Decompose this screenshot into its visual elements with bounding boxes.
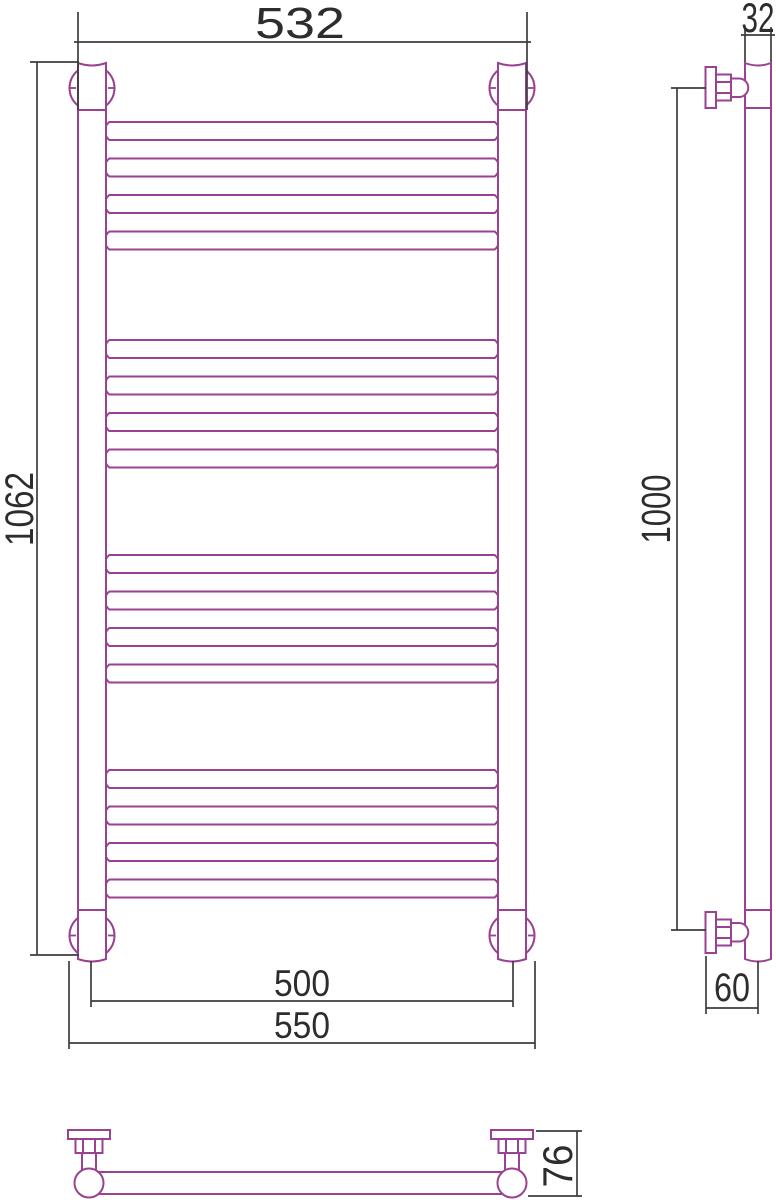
dim-mount-height-label: 1000 (633, 475, 679, 544)
towel-rail-drawing: 532 1062 500 550 32 (0, 0, 776, 1200)
rung (105, 628, 499, 646)
side-top-bracket (706, 67, 749, 108)
bottom-view (68, 1130, 533, 1198)
rung (105, 340, 499, 358)
bottom-right-tube-section (498, 1169, 527, 1198)
rung (105, 880, 499, 898)
dim-width-top-label: 532 (255, 0, 345, 48)
rung (105, 122, 499, 140)
bottom-tube (89, 1172, 512, 1194)
rung (105, 770, 499, 788)
dim-height-label: 1062 (0, 472, 42, 546)
dim-tube-diameter-label: 32 (742, 0, 775, 41)
rung (105, 555, 499, 573)
rung (105, 232, 499, 250)
rung (105, 592, 499, 610)
rung (105, 377, 499, 395)
bottom-left-bracket (68, 1130, 110, 1170)
side-tube (745, 63, 771, 962)
bottom-left-tube-section (75, 1169, 104, 1198)
rung (105, 195, 499, 213)
drawing-canvas: 532 1062 500 550 32 (0, 0, 776, 1200)
rung (105, 159, 499, 177)
rungs (105, 122, 499, 898)
front-left-tube (78, 63, 106, 962)
front-collar-lines (78, 110, 526, 910)
rung (105, 807, 499, 825)
rung (105, 665, 499, 683)
dim-depth-label: 76 (534, 1145, 581, 1188)
front-view (69, 63, 536, 962)
rung (105, 413, 499, 431)
rung (105, 843, 499, 861)
side-view (706, 63, 772, 962)
front-right-tube (498, 63, 526, 962)
rung (105, 450, 499, 468)
dim-width-overall-label: 550 (274, 1005, 330, 1046)
dim-wall-offset-label: 60 (714, 966, 750, 1010)
bottom-right-bracket (491, 1130, 533, 1170)
side-bottom-bracket (706, 912, 749, 953)
dim-width-axis-label: 500 (274, 963, 330, 1004)
